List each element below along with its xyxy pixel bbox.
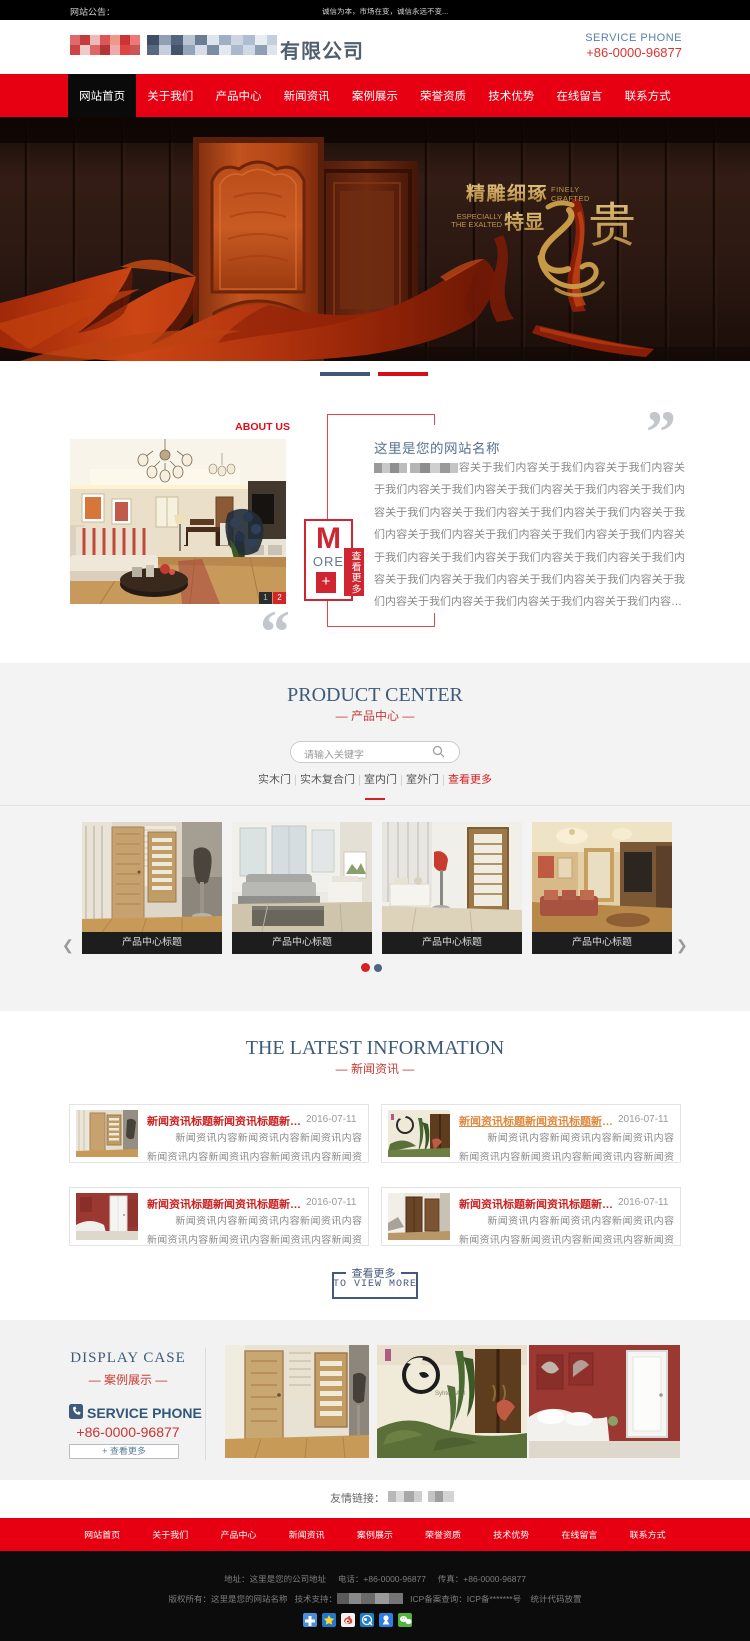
svg-text:贵: 贵 — [588, 186, 636, 256]
svg-text:精雕细琢: 精雕细琢 — [466, 179, 548, 206]
svg-text:特显: 特显 — [504, 206, 544, 235]
svg-text:THE EXALTED: THE EXALTED — [451, 220, 502, 229]
svg-text:FINELY: FINELY — [551, 185, 580, 194]
